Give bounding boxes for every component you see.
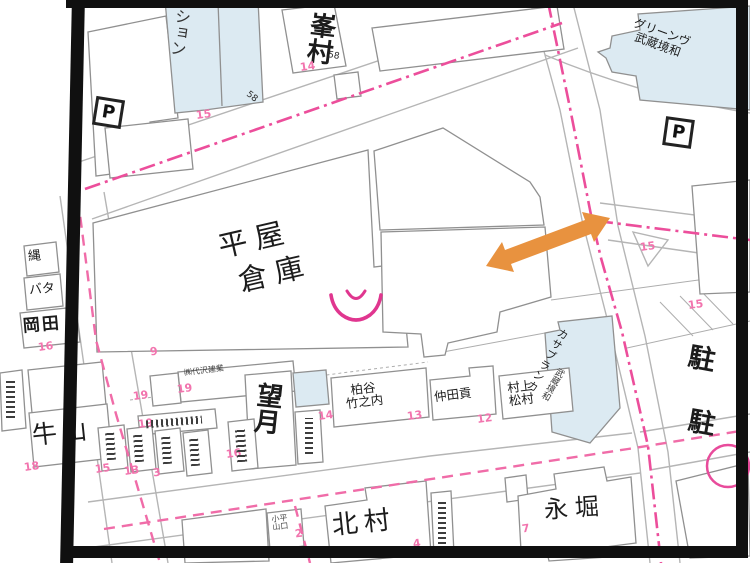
- illegible-text: [133, 434, 144, 463]
- building: [374, 128, 544, 230]
- boundary-line: [627, 321, 750, 348]
- map-frame-right: [736, 0, 748, 552]
- label-chu-upper: 駐: [686, 344, 718, 377]
- label-nawa: 縄: [27, 249, 41, 264]
- label-kodaira: 小平 山口: [271, 514, 289, 532]
- lot-number: 14: [317, 408, 334, 423]
- buildings: [0, 0, 750, 563]
- lot-number: 15: [639, 239, 656, 254]
- label-bata: バタ: [28, 282, 55, 298]
- lot-number: 7: [521, 522, 530, 536]
- lot-number: 15: [195, 107, 212, 122]
- building: [334, 72, 361, 99]
- illegible-text: [305, 418, 313, 454]
- label-chu-lower: 駐: [686, 408, 718, 441]
- illegible-text: [6, 380, 15, 418]
- lot-number: 15: [687, 297, 704, 312]
- map-frame-top: [66, 0, 748, 8]
- lot-number: 14: [299, 59, 316, 74]
- building: [372, 6, 564, 71]
- illegible-text: [105, 432, 116, 461]
- lot-number: 19: [176, 381, 193, 396]
- parking-icon: P: [92, 96, 125, 129]
- parking-icon: P: [662, 116, 695, 149]
- parking-stall-line: [700, 290, 733, 324]
- lot-number: 15: [94, 461, 111, 476]
- illegible-text: [161, 436, 172, 465]
- label-kodaira-line2: 山口: [272, 523, 289, 533]
- illegible-text: [189, 438, 200, 467]
- map-frame-bottom: [72, 546, 748, 558]
- lot-number: 3: [152, 466, 161, 480]
- label-kitamura: 北村: [331, 507, 398, 541]
- label-nagahori: 永堀: [543, 494, 607, 523]
- map-canvas: [0, 0, 750, 563]
- lot-number: 12: [476, 411, 493, 426]
- lot-number: 16: [37, 339, 54, 354]
- lot-number: 2: [294, 527, 303, 541]
- building: [293, 370, 329, 407]
- map-screenshot: ション 峯村 グリーンヴ 武蔵境和 P P 平屋 倉庫 縄 バタ 岡田 牛山 ㈱…: [0, 0, 750, 563]
- lot-number: 18: [23, 459, 40, 474]
- lot-number: 19: [132, 388, 149, 403]
- lot-number: 13: [406, 408, 423, 423]
- lot-number: 9: [149, 345, 158, 359]
- label-mochizuki: 望月: [249, 381, 282, 436]
- illegible-text: [438, 500, 446, 544]
- lot-number: 13: [123, 463, 140, 478]
- label-kashiwaya: 柏谷 竹之内: [344, 380, 384, 411]
- building-green-heights: [598, 6, 750, 110]
- label-okada: 岡田: [22, 315, 61, 336]
- lot-number-black: 58: [327, 50, 340, 62]
